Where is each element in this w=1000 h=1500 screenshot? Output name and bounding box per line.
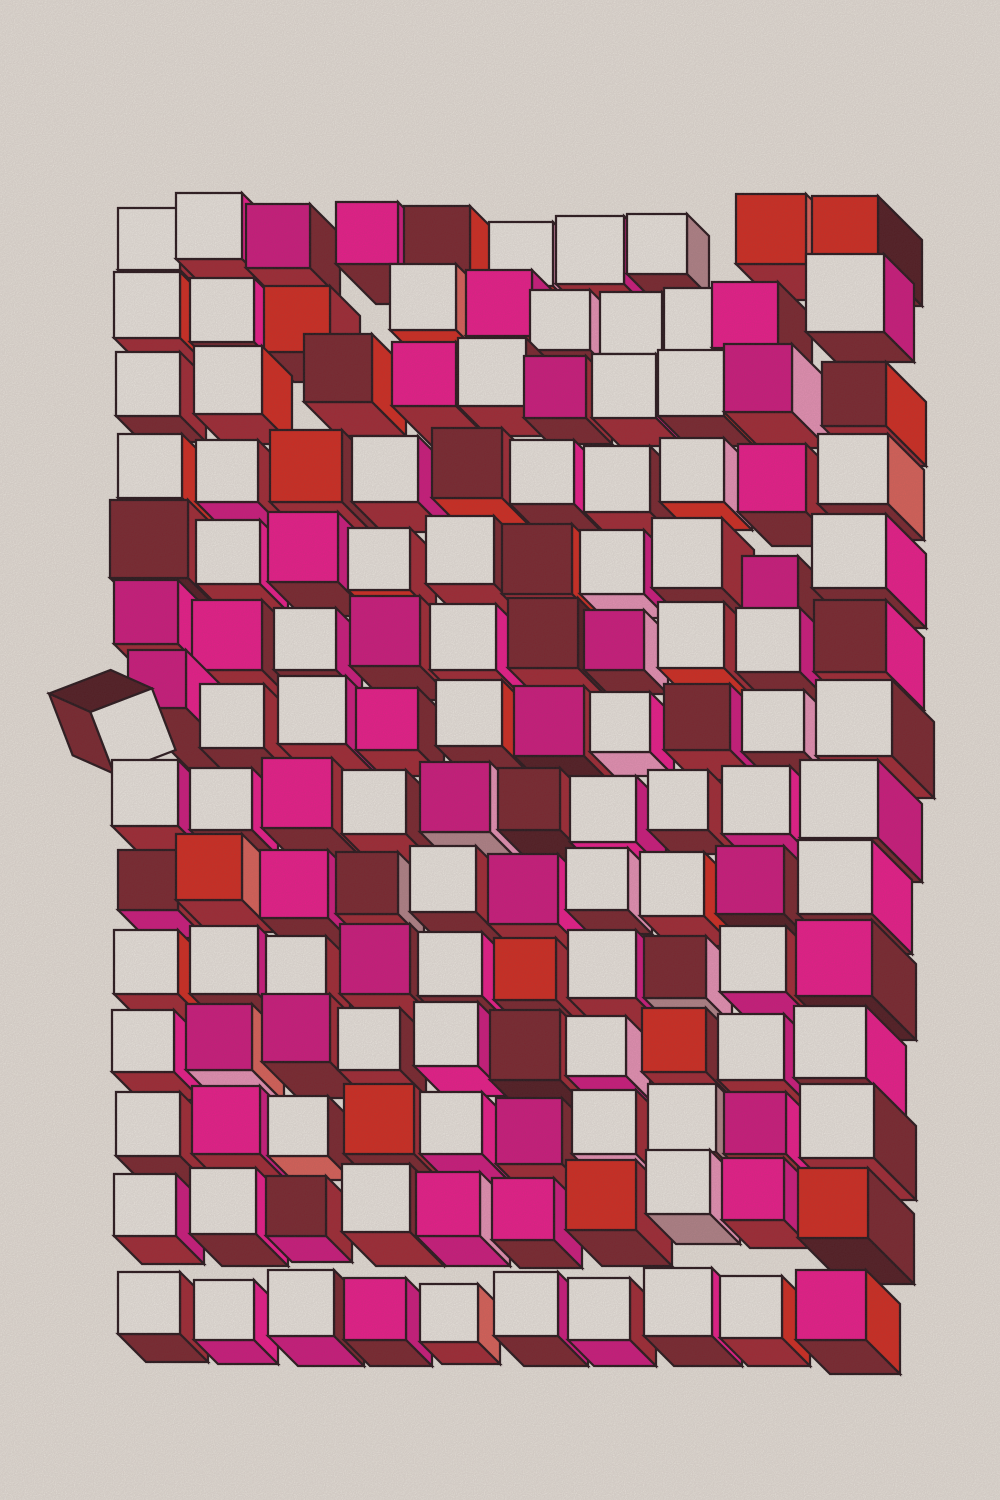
cube (566, 1016, 650, 1100)
cube-field-art (0, 0, 1000, 1500)
cube (590, 692, 674, 776)
cube (338, 1008, 426, 1096)
cube (266, 1176, 352, 1262)
cube (420, 1284, 500, 1364)
cube (568, 1278, 656, 1366)
cube (268, 1096, 352, 1180)
cube (584, 610, 668, 694)
cube (806, 254, 914, 362)
cube (116, 352, 206, 442)
cube-grid (49, 193, 934, 1374)
cube (344, 1278, 432, 1366)
cube (648, 770, 732, 854)
artwork-canvas (0, 0, 1000, 1500)
cube (627, 214, 709, 296)
cube (194, 1280, 278, 1364)
